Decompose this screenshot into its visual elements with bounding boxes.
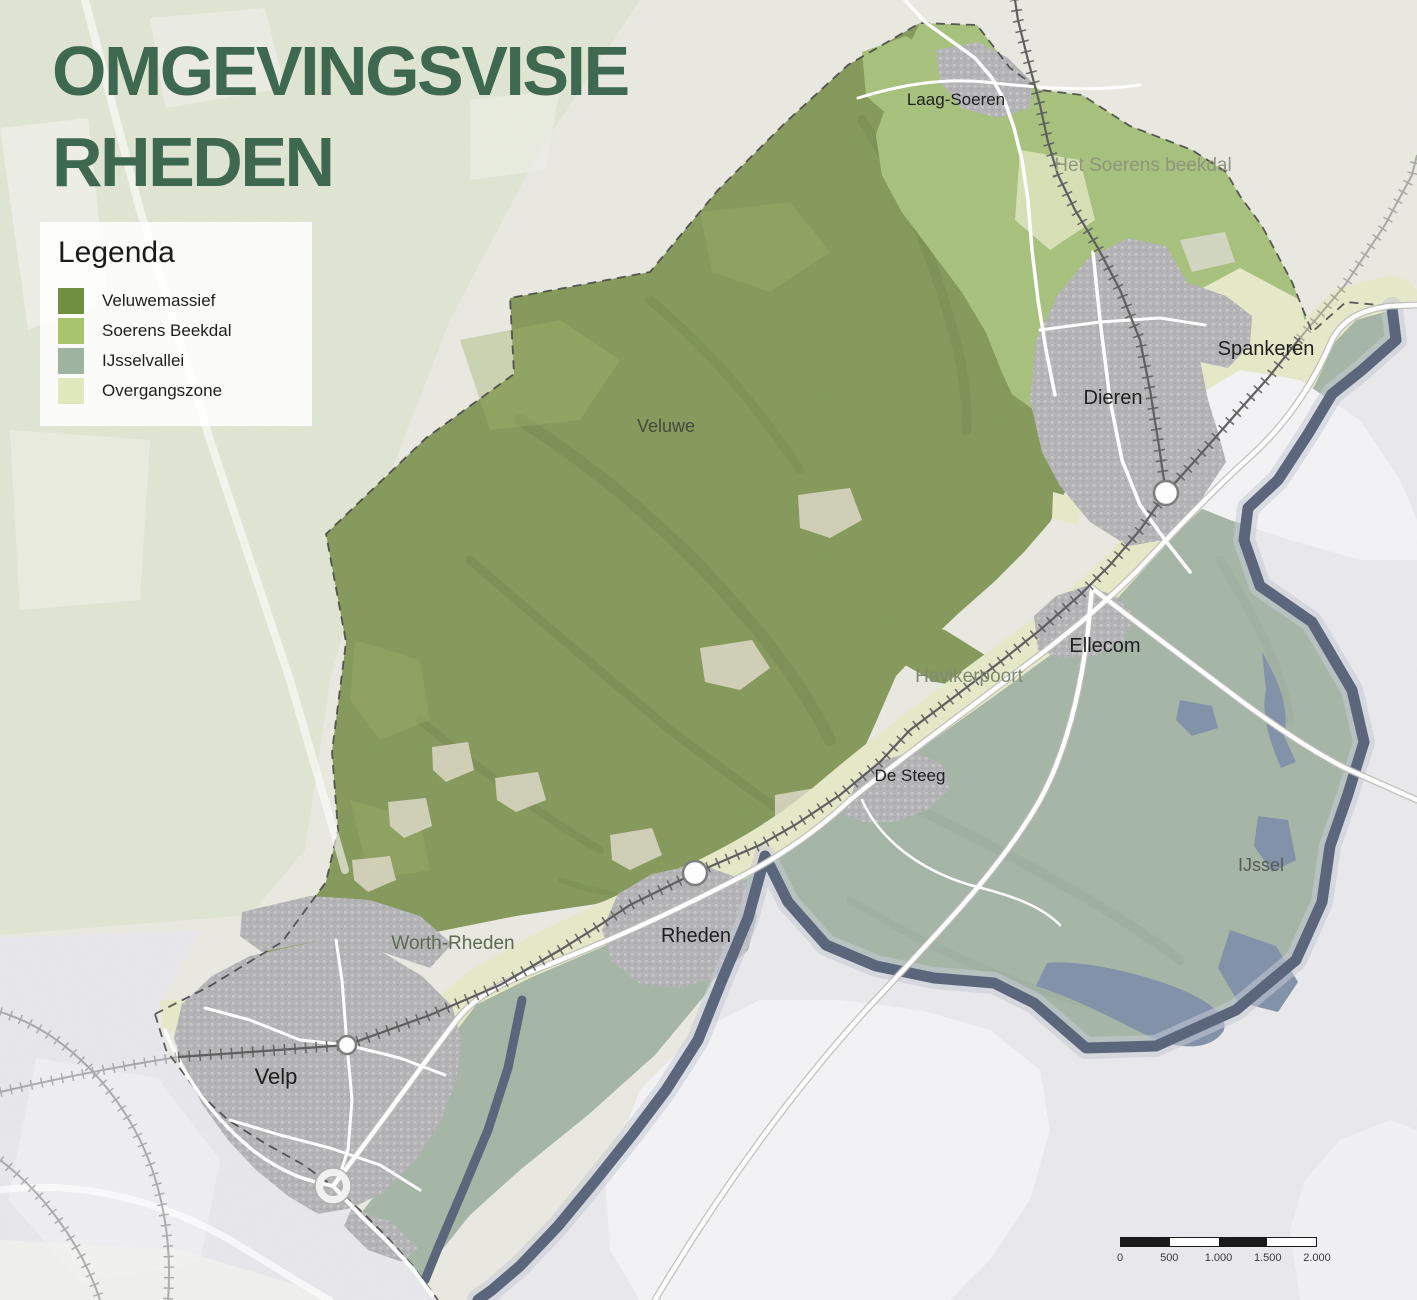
map-label-veluwe: Veluwe — [637, 416, 695, 436]
map-label-worth-rheden: Worth-Rheden — [391, 933, 514, 954]
legend-item-veluwemassief: Veluwemassief — [58, 286, 294, 316]
legend-swatch-veluwemassief — [58, 288, 84, 314]
map-label-de-steeg: De Steeg — [875, 766, 946, 785]
map-label-rheden: Rheden — [661, 925, 731, 947]
map-label-havikerpoort: Havikerpoort — [915, 666, 1023, 687]
scalebar-segment — [1219, 1238, 1268, 1246]
legend-label-veluwemassief: Veluwemassief — [102, 291, 215, 311]
title-line-1: OMGEVINGSVISIE — [52, 26, 812, 117]
scalebar-tick-label: 1.000 — [1205, 1252, 1233, 1264]
legend: Legenda VeluwemassiefSoerens BeekdalIJss… — [40, 222, 312, 426]
legend-item-overgangszone: Overgangszone — [58, 376, 294, 406]
scalebar-ticks: 05001.0001.5002.000 — [1120, 1252, 1317, 1268]
map-label-laag-soeren: Laag-Soeren — [907, 90, 1005, 109]
map-label-spankeren: Spankeren — [1218, 338, 1315, 360]
legend-item-soerens-beekdal: Soerens Beekdal — [58, 316, 294, 346]
legend-label-soerens-beekdal: Soerens Beekdal — [102, 321, 231, 341]
scalebar-tick-label: 1.500 — [1254, 1252, 1282, 1264]
scalebar-tick-label: 500 — [1160, 1252, 1178, 1264]
legend-items: VeluwemassiefSoerens BeekdalIJsselvallei… — [58, 286, 294, 406]
scalebar-segment — [1121, 1238, 1170, 1246]
scalebar-segment — [1267, 1238, 1316, 1246]
scalebar-segment — [1170, 1238, 1219, 1246]
map-label-dieren: Dieren — [1084, 387, 1143, 409]
title-line-2: RHEDEN — [52, 117, 812, 208]
scalebar-tick-label: 0 — [1117, 1252, 1123, 1264]
scalebar-segments — [1120, 1237, 1317, 1247]
map-label-ellecom: Ellecom — [1069, 635, 1140, 657]
legend-label-ijsselvallei: IJsselvallei — [102, 351, 184, 371]
legend-heading: Legenda — [58, 236, 294, 270]
legend-item-ijsselvallei: IJsselvallei — [58, 346, 294, 376]
legend-swatch-ijsselvallei — [58, 348, 84, 374]
legend-swatch-soerens-beekdal — [58, 318, 84, 344]
legend-label-overgangszone: Overgangszone — [102, 381, 222, 401]
map-label-velp: Velp — [255, 1064, 298, 1089]
map-label-soerens-beekdal: Het Soerens beekdal — [1054, 155, 1231, 176]
map-stage: Laag-SoerenHet Soerens beekdalSpankerenD… — [0, 0, 1417, 1300]
map-title: OMGEVINGSVISIE RHEDEN — [52, 26, 812, 208]
scalebar-tick-label: 2.000 — [1303, 1252, 1331, 1264]
legend-swatch-overgangszone — [58, 378, 84, 404]
map-label-ijssel: IJssel — [1238, 855, 1284, 875]
scalebar: 05001.0001.5002.000 — [1120, 1237, 1317, 1268]
